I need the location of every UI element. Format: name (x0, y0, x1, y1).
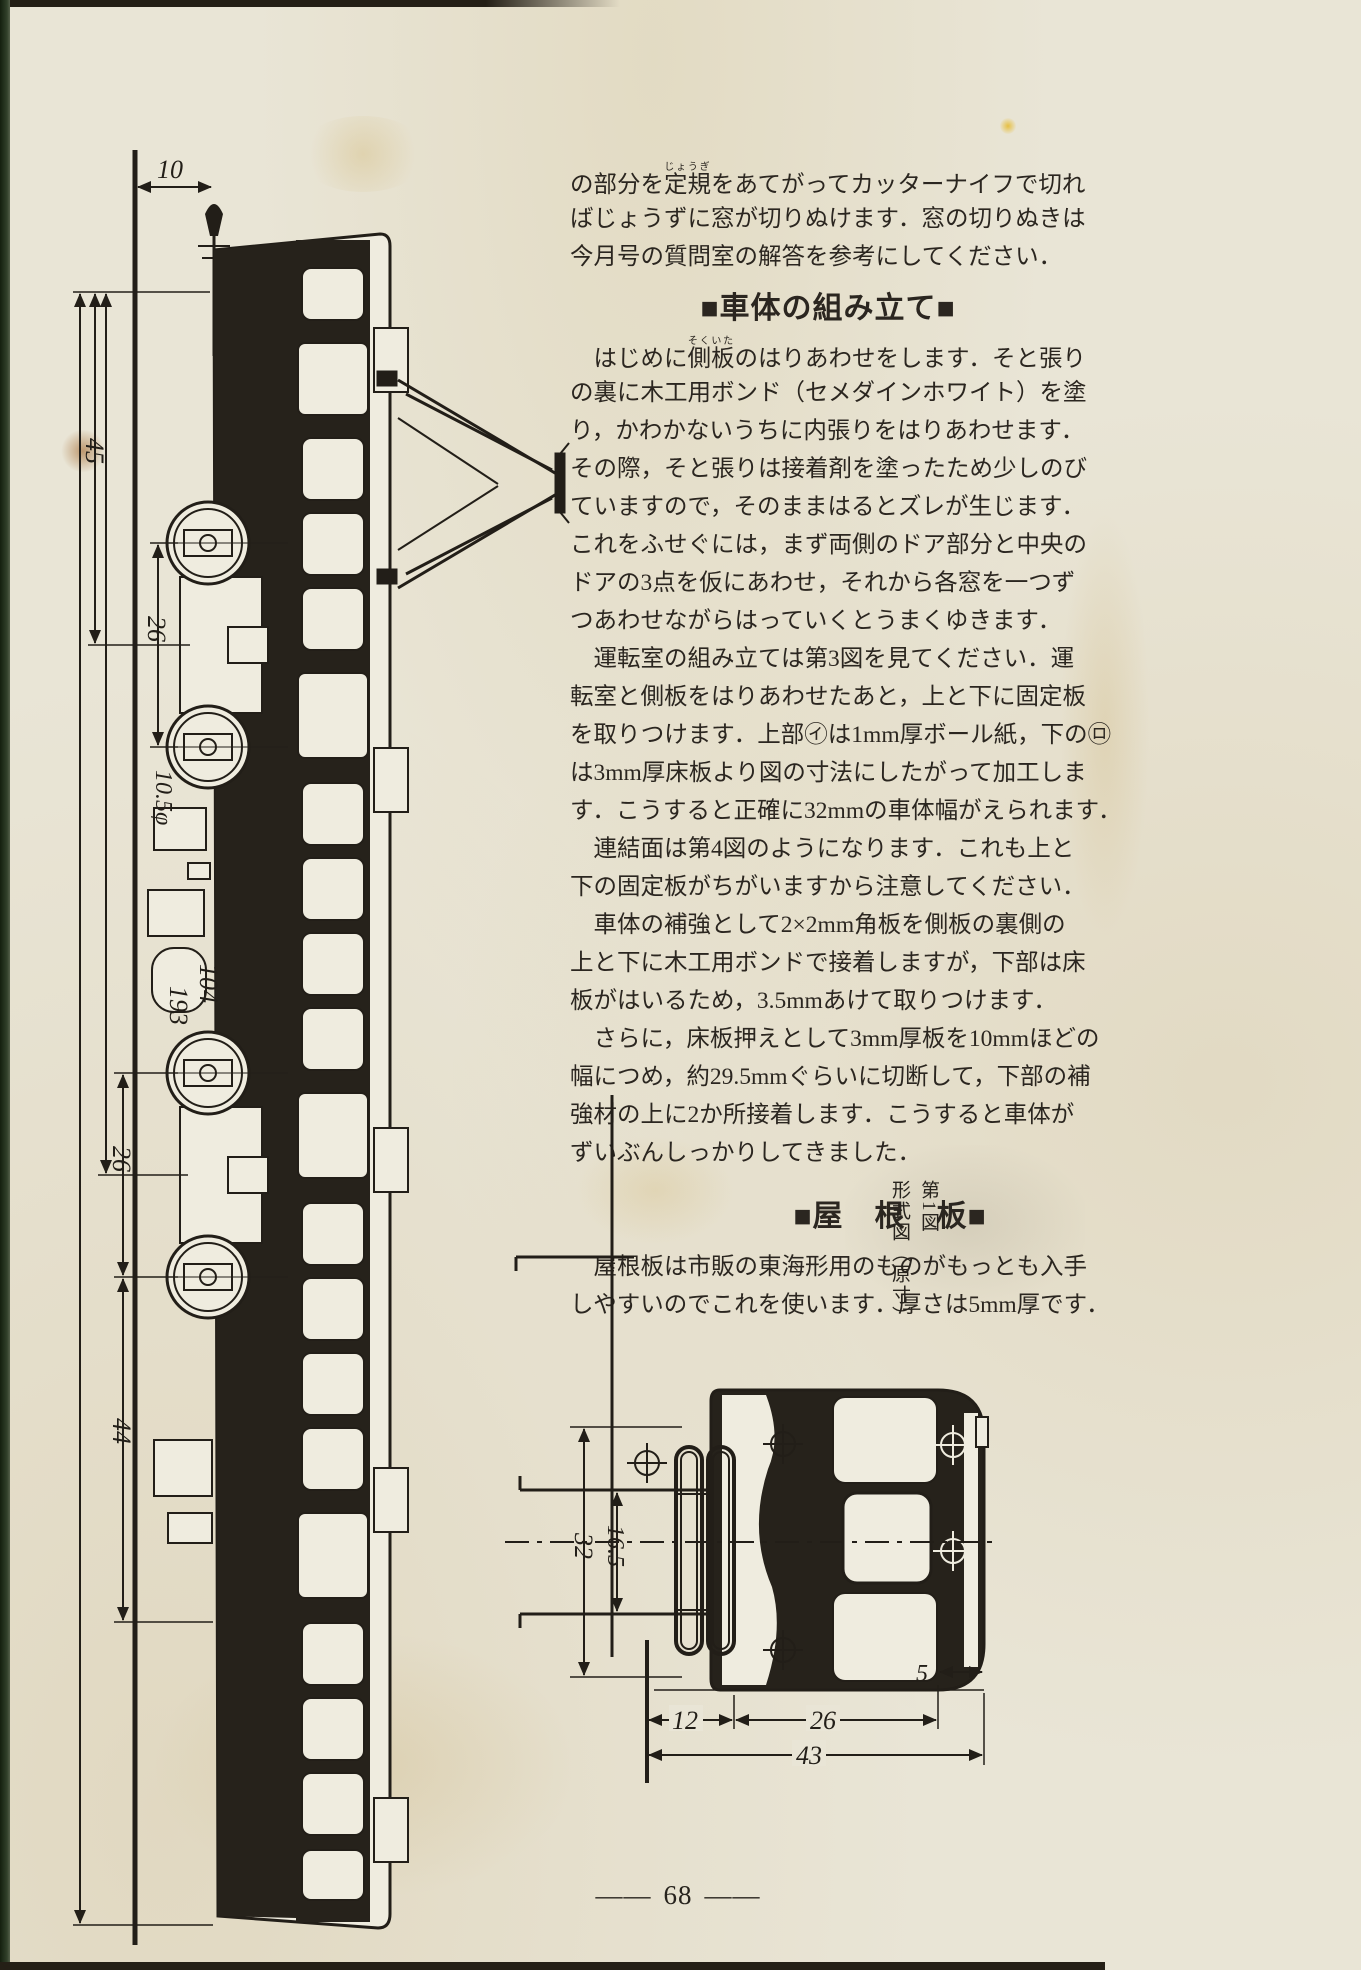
window (302, 1203, 364, 1265)
page-number-dash: ―― (705, 1880, 761, 1910)
scan-edge-top (10, 0, 620, 7)
body-text-line: 運転室の組み立ては第3図を見てください．運 (570, 640, 1086, 678)
roof-vent (374, 748, 408, 812)
window (302, 1008, 364, 1070)
bogie-pivot (228, 1157, 268, 1193)
roof-vent (374, 1798, 408, 1862)
window (302, 1278, 364, 1340)
dim-label-44: 44 (107, 1418, 136, 1444)
window (302, 858, 364, 920)
text-seg: はじめに (570, 346, 688, 372)
body-text-line: さらに，床板押えとして3mm厚板を10mmほどの (570, 1020, 1086, 1058)
figure-number: 第1図 (915, 1180, 942, 1355)
pantograph-shoe (556, 454, 564, 512)
end-window (833, 1397, 937, 1483)
body-text-line: り，かわかないうちに内張りをはりあわせます． (570, 412, 1086, 450)
ruby-base: 側板 (688, 346, 735, 372)
cab-window (302, 268, 364, 320)
body-text-line: ていますので，そのままはるとズレが生じます． (570, 488, 1086, 526)
body-text-line: ドアの3点を仮にあわせ，それから各窓を一つず (570, 564, 1086, 602)
dim-label-10: 10 (157, 155, 183, 184)
body-text-line: は3mm厚床板より図の寸法にしたがって加工しま (570, 754, 1086, 792)
text-seg: のはりあわせをします．そと張り (735, 346, 1087, 372)
dim-label-26-rear: 26 (107, 1146, 136, 1172)
window (302, 783, 364, 845)
window (302, 1353, 364, 1415)
dim-label-26: 26 (810, 1706, 836, 1735)
door-window (298, 1513, 368, 1598)
window (302, 1428, 364, 1490)
body-text-line: 下の固定板がちがいますから注意してください． (570, 868, 1086, 906)
body-text-line: の部分を定規じょうぎをあてがってカッターナイフで切れ (570, 162, 1086, 200)
body-text-line: はじめに側板そくいたのはりあわせをします．そと張り (570, 336, 1086, 374)
ruby-reading: そくいた (688, 336, 735, 347)
page-number-dash: ―― (596, 1880, 652, 1910)
scan-edge-left (0, 0, 10, 1970)
page-number-block: ――68―― (588, 1880, 768, 1911)
body-text-line: す．こうすると正確に32mmの車体幅がえられます． (570, 792, 1086, 830)
ruby-reading: じょうぎ (664, 162, 711, 173)
body-text-line: 車体の補強として2×2mm角板を側板の裏側の (570, 906, 1086, 944)
door-window (298, 343, 368, 415)
ruby-base: 定規 (664, 172, 711, 198)
body-text-line: その際，そと張りは接着剤を塗ったため少しのび (570, 450, 1086, 488)
dimension-pole-offset: 10 (138, 155, 211, 187)
dim-label-43: 43 (796, 1741, 822, 1770)
dim-label-32: 32 (569, 1532, 598, 1559)
door-window (298, 673, 368, 758)
window (302, 1773, 364, 1835)
dim-label-12: 12 (672, 1706, 698, 1735)
figure-caption: 第1図 形式図（原寸） (884, 1180, 944, 1355)
bogie-pivot (228, 627, 268, 663)
dim-label-26-front: 26 (142, 616, 171, 642)
dim-label-16-5: 16.5 (602, 1525, 628, 1567)
magazine-page: { "page": { "number": "68", "dash": "――"… (0, 0, 1361, 1970)
body-text-line: 幅につめ，約29.5mmぐらいに切断して，下部の補 (570, 1058, 1086, 1096)
body-text-line: 今月号の質問室の解答を参考にしてください． (570, 238, 1086, 276)
window (302, 1698, 364, 1760)
dim-label-104: 104 (194, 964, 223, 1003)
body-text-line: 転室と側板をはりあわせたあと，上と下に固定板 (570, 678, 1086, 716)
dim-label-193: 193 (164, 986, 193, 1025)
text-seg: をあてがってカッターナイフで切れ (711, 172, 1085, 198)
window (302, 438, 364, 500)
cross-circle-icon (627, 1443, 667, 1483)
window (302, 588, 364, 650)
end-window-center (843, 1493, 931, 1583)
window (302, 513, 364, 575)
body-text-line: の裏に木工用ボンド（セメダインホワイト）を塗 (570, 374, 1086, 412)
ruby-term: 定規じょうぎ (664, 172, 711, 198)
window (302, 933, 364, 995)
figure-title: 形式図（原寸） (886, 1180, 913, 1355)
roof-vent (374, 1128, 408, 1192)
dim-label-wheel-diameter: 10.5φ (150, 770, 176, 825)
body-text-line: つあわせながらはっていくとうまくゆきます． (570, 602, 1086, 640)
page-number: 68 (664, 1880, 693, 1910)
paper-stain (1000, 118, 1016, 134)
section-heading-body-assembly: ■車体の組み立て■ (570, 290, 1086, 328)
body-text-line: これをふせぐには，まず両側のドア部分と中央の (570, 526, 1086, 564)
roof-bracket-upper (516, 1257, 634, 1271)
roof-vent (374, 1468, 408, 1532)
end-edge-slot (964, 1413, 978, 1667)
body-text-line: 上と下に木工用ボンドで接着しますが，下部は床 (570, 944, 1086, 982)
dim-label-45: 45 (80, 438, 109, 464)
text-seg: の部分を (570, 172, 664, 198)
ruby-term: 側板そくいた (688, 346, 735, 372)
body-text-line: を取りつけます．上部㋑は1mm厚ボール紙，下の㋺ (570, 716, 1086, 754)
body-text-line: 板がはいるため，3.5mmあけて取りつけます． (570, 982, 1086, 1020)
cab-window (302, 1850, 364, 1900)
pantograph (378, 372, 569, 588)
marker-light (976, 1417, 988, 1447)
door-window (298, 1093, 368, 1178)
body-text-line: 連結面は第4図のようになります．これも上と (570, 830, 1086, 868)
dim-label-5: 5 (916, 1661, 928, 1687)
body-text-line: ばじょうずに窓が切りぬけます．窓の切りぬきは (570, 200, 1086, 238)
window (302, 1623, 364, 1685)
